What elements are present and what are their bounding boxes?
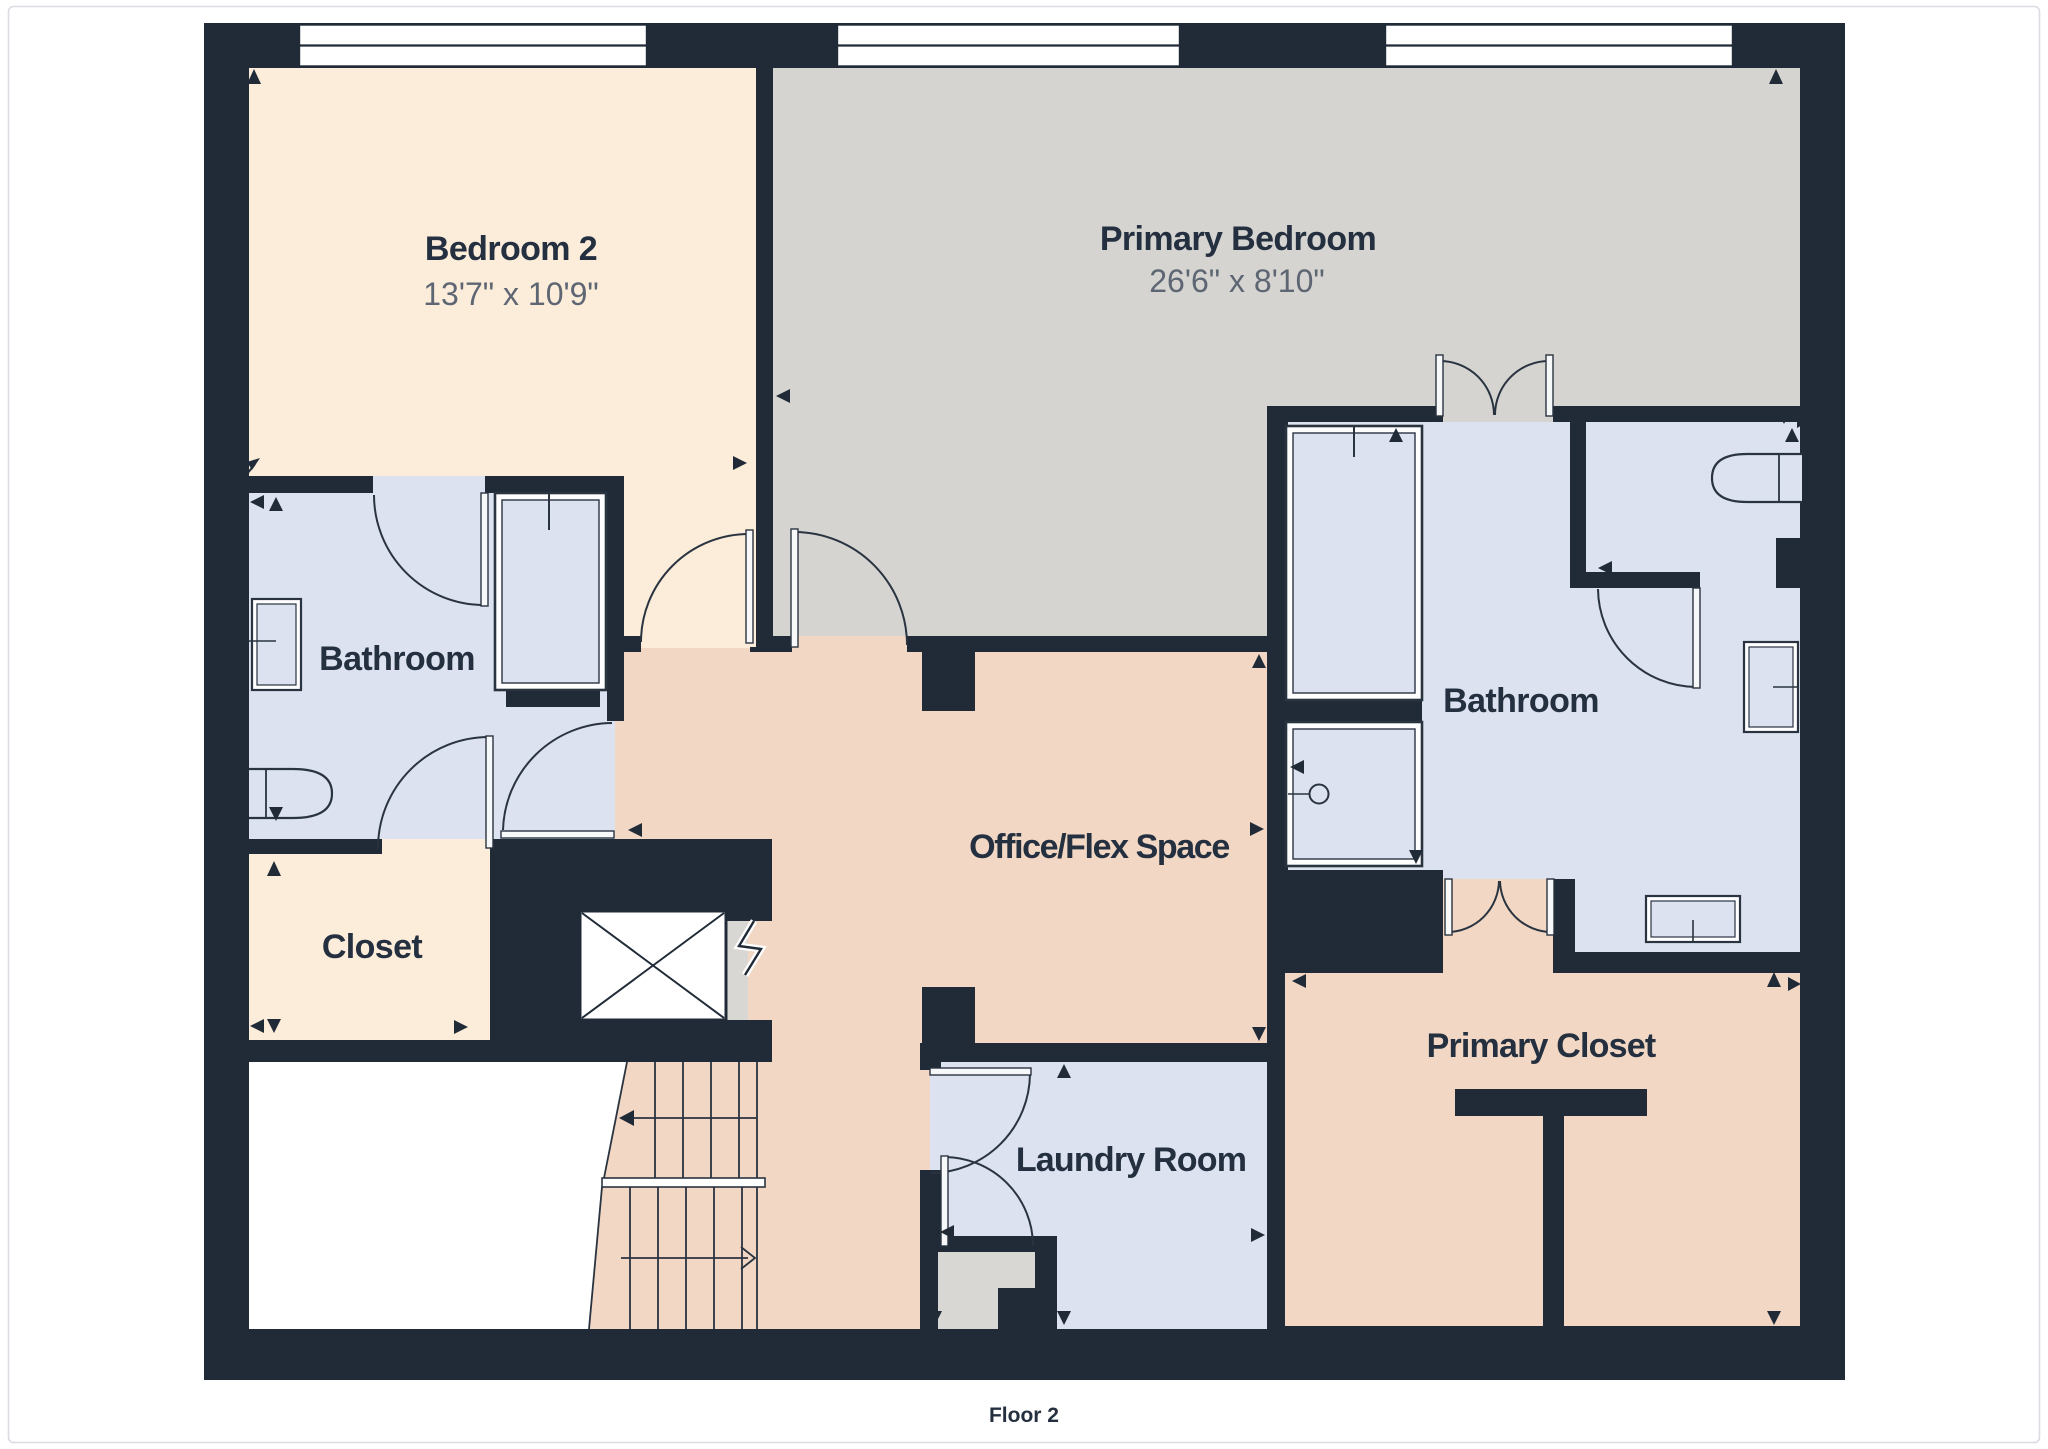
svg-text:Office/Flex Space: Office/Flex Space — [969, 828, 1229, 866]
svg-text:Primary Closet: Primary Closet — [1427, 1027, 1656, 1065]
svg-text:Primary Bedroom: Primary Bedroom — [1100, 220, 1376, 258]
svg-text:Bedroom 2: Bedroom 2 — [425, 230, 597, 268]
svg-text:26'6" x 8'10": 26'6" x 8'10" — [1149, 263, 1325, 299]
svg-text:Bathroom: Bathroom — [319, 640, 475, 678]
svg-text:Closet: Closet — [322, 928, 423, 966]
svg-text:Laundry Room: Laundry Room — [1016, 1141, 1246, 1179]
svg-text:13'7" x 10'9": 13'7" x 10'9" — [423, 276, 599, 312]
svg-text:Bathroom: Bathroom — [1443, 682, 1599, 720]
svg-text:Floor 2: Floor 2 — [989, 1404, 1059, 1427]
